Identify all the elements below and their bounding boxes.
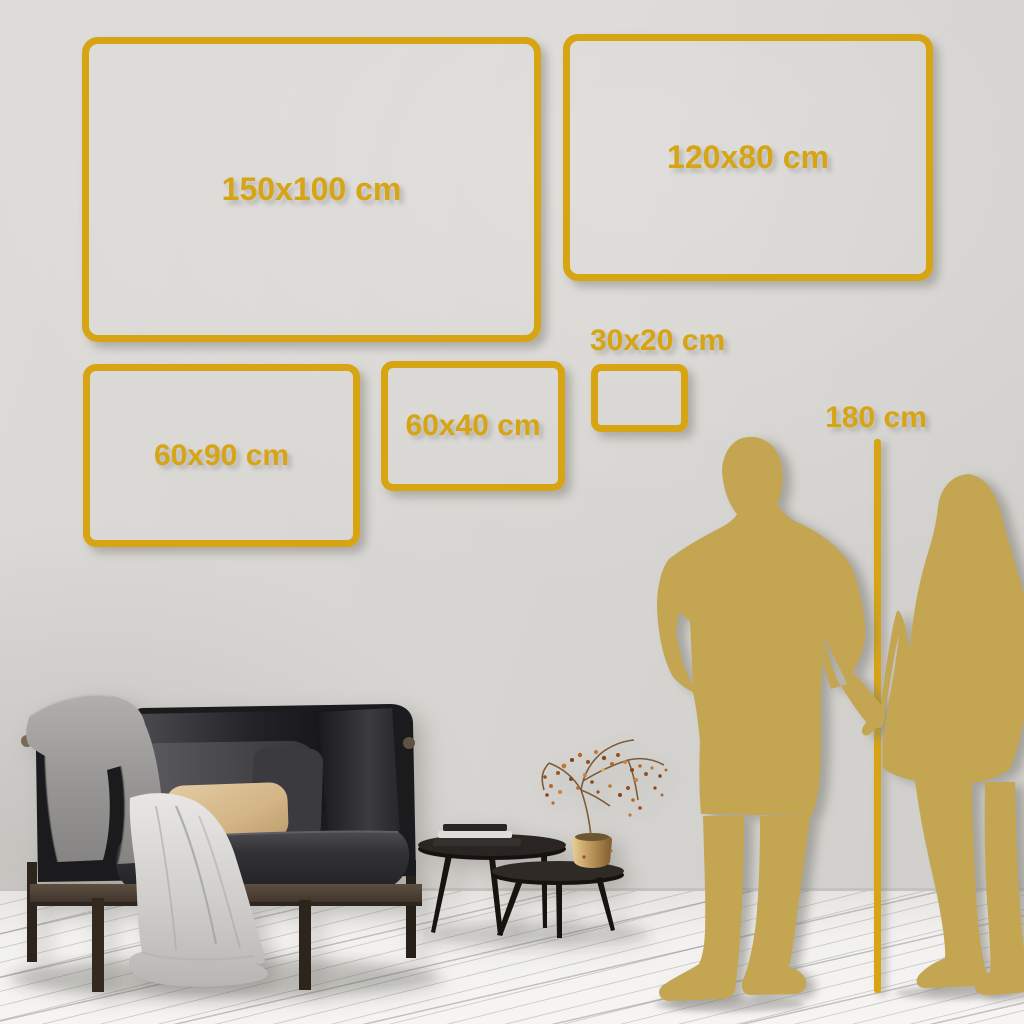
size-frame-150x100: 150x100 cm: [82, 37, 541, 342]
size-guide-image: 150x100 cm 120x80 cm 60x90 cm 60x40 cm 3…: [0, 0, 1024, 1024]
size-frame-60x40: 60x40 cm: [381, 361, 565, 491]
woman-silhouette: [862, 474, 1024, 995]
size-frame-60x90: 60x90 cm: [83, 364, 360, 547]
size-label-150x100: 150x100 cm: [222, 171, 402, 208]
size-frame-120x80: 120x80 cm: [563, 34, 933, 281]
man-silhouette: [657, 437, 885, 1001]
coffee-tables: [418, 740, 668, 946]
size-label-60x40: 60x40 cm: [405, 409, 540, 443]
size-label-60x90: 60x90 cm: [154, 439, 289, 473]
sofa: [10, 695, 440, 998]
height-reference-label: 180 cm: [825, 401, 927, 435]
size-frame-30x20: [591, 364, 688, 432]
size-label-120x80: 120x80 cm: [667, 139, 829, 176]
brass-vase: [572, 833, 612, 868]
books-stack: [433, 824, 521, 846]
size-label-30x20: 30x20 cm: [590, 324, 725, 358]
